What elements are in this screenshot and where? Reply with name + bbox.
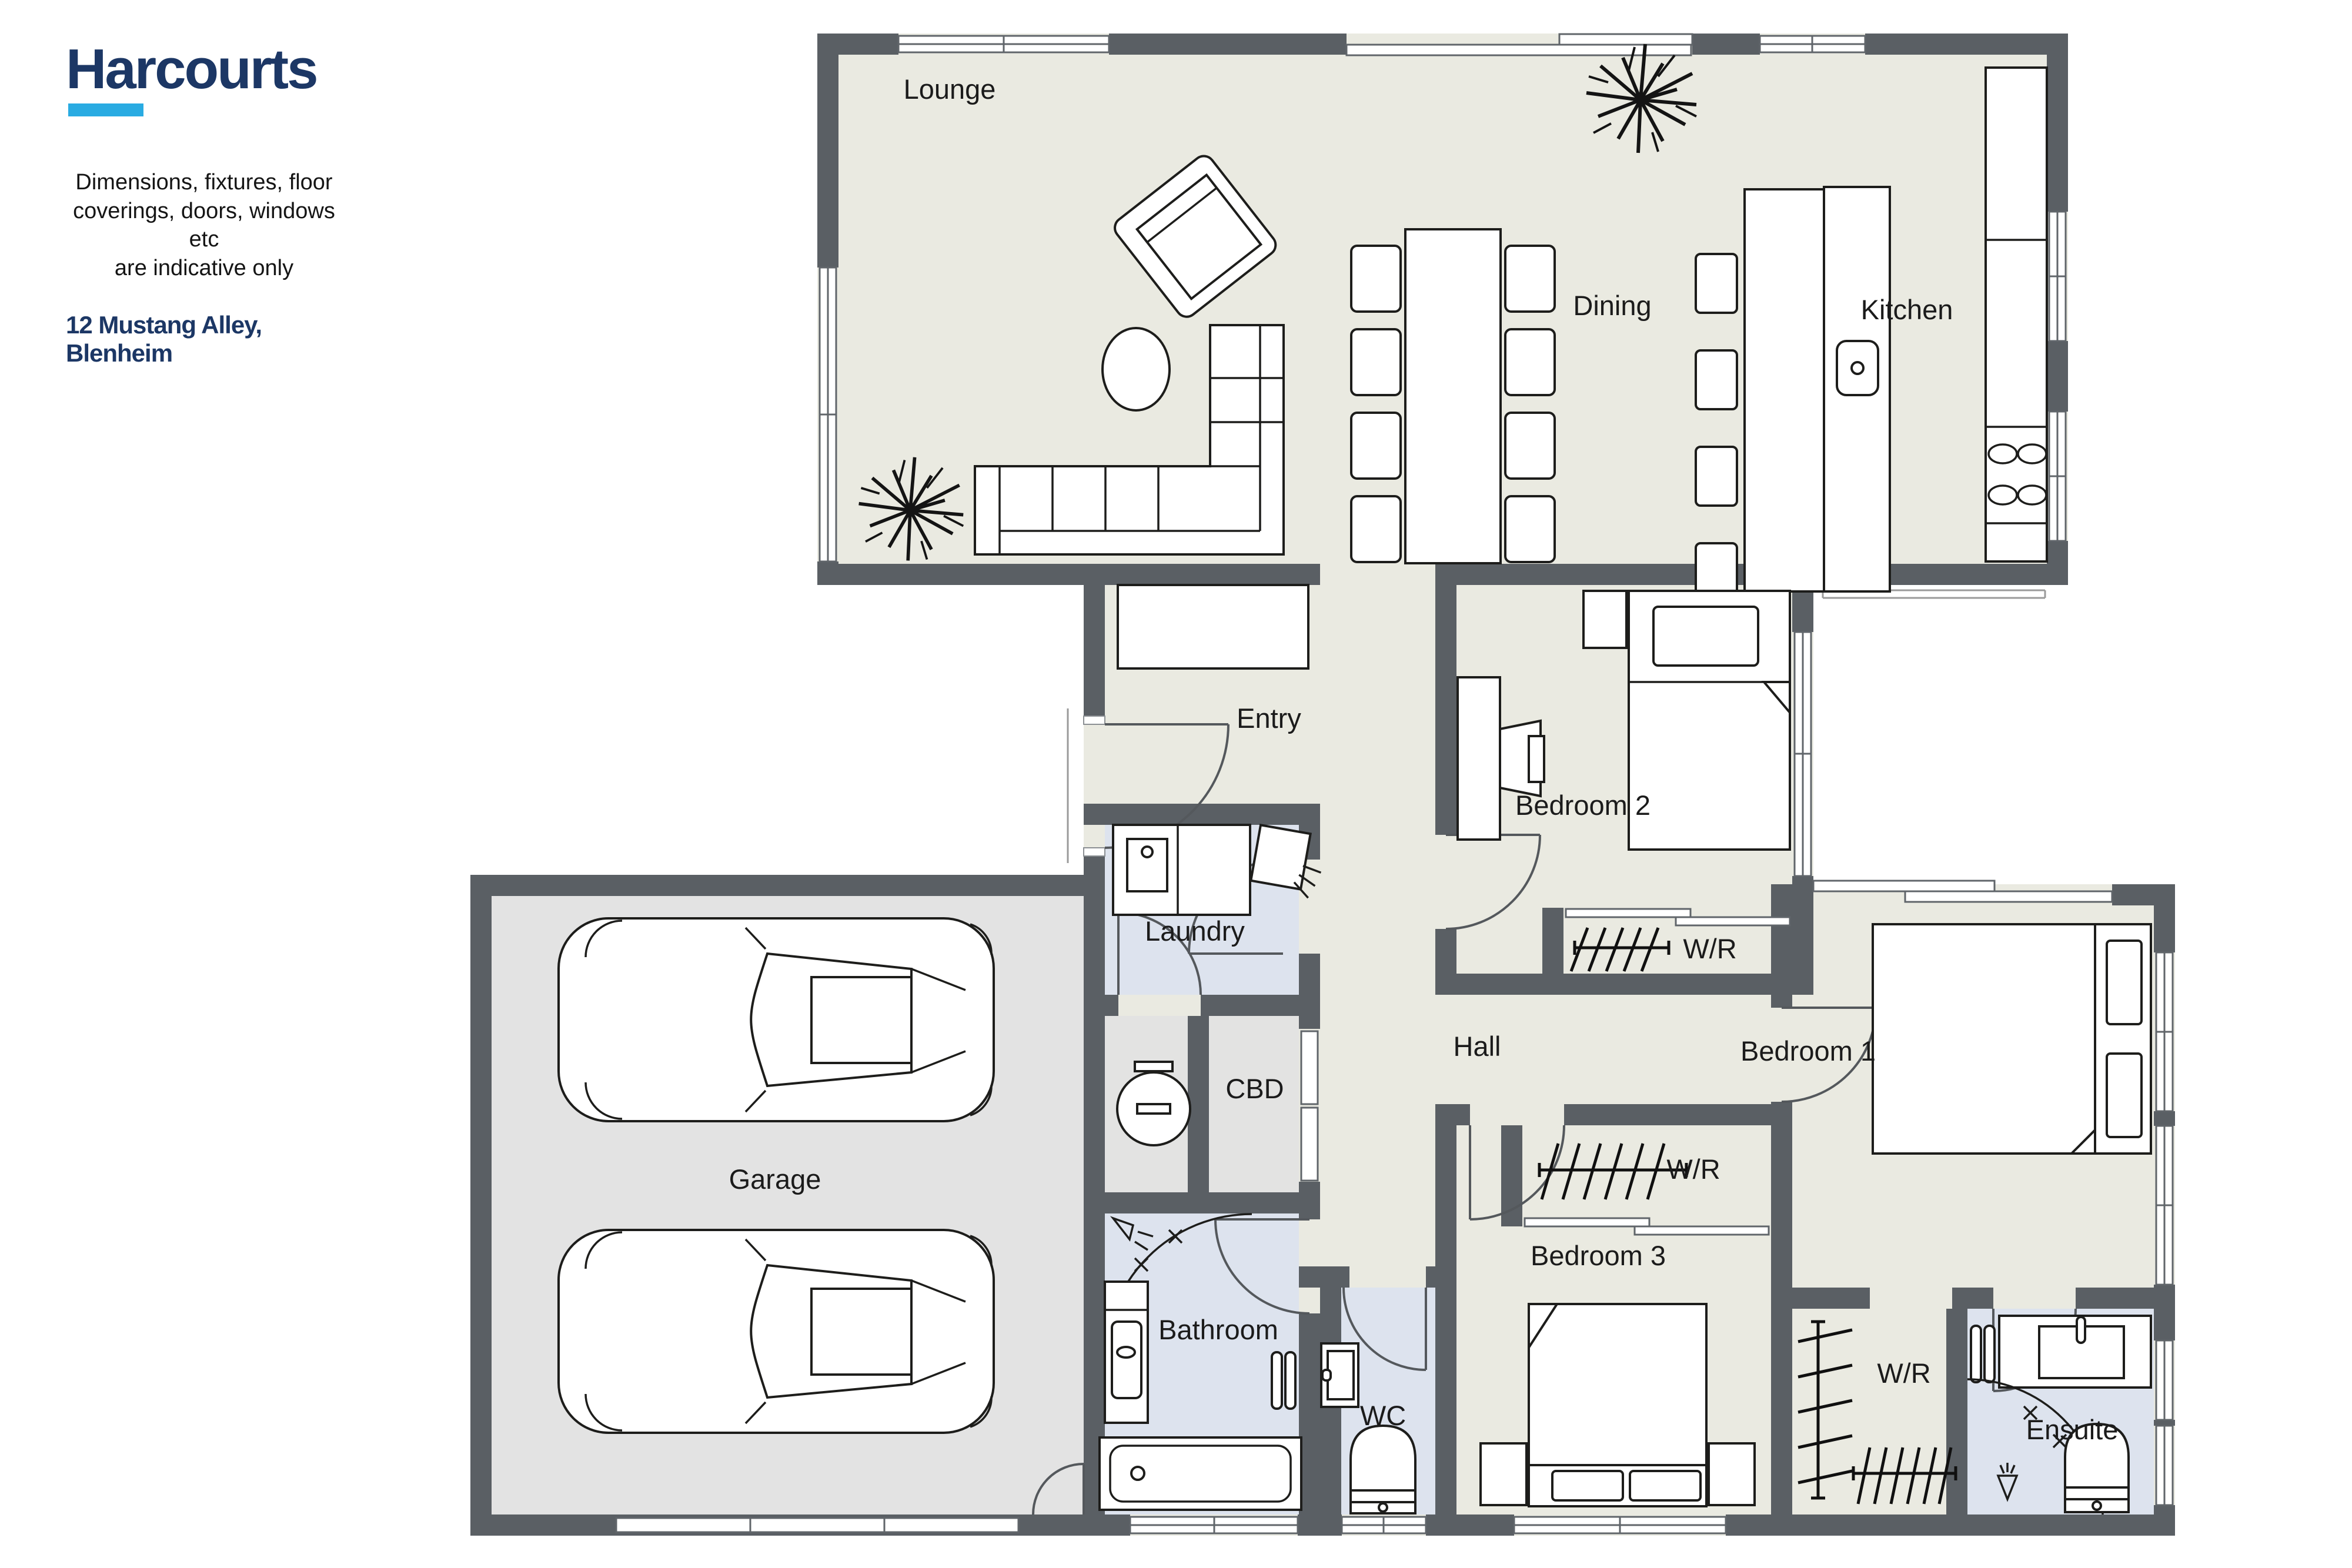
disclaimer-text: Dimensions, fixtures, floor coverings, d…	[66, 168, 342, 283]
floorplan-svg: Lounge Dining Kitchen Entry Laundry CBD …	[0, 0, 2352, 1568]
label-lounge: Lounge	[904, 73, 996, 105]
label-dining: Dining	[1573, 290, 1651, 321]
window-bedroom3-bottom	[1514, 1517, 1726, 1533]
harcourts-logo: Harcourts	[66, 41, 342, 98]
toilet-wc	[1351, 1426, 1415, 1513]
bathtub	[1100, 1437, 1301, 1510]
bathroom-vanity	[1105, 1282, 1148, 1423]
window-wc-bottom	[1342, 1517, 1426, 1533]
garage-door	[616, 1518, 1018, 1532]
bedroom2-nightstand	[1583, 591, 1626, 648]
property-address: 12 Mustang Alley, Blenheim	[66, 311, 342, 367]
window-bathroom-bottom	[1130, 1517, 1298, 1533]
front-door-jamb-bottom	[1084, 848, 1105, 856]
window-bedroom2-right	[1795, 632, 1811, 876]
bedroom3-bed	[1529, 1304, 1706, 1506]
label-bedroom2: Bedroom 2	[1515, 790, 1651, 821]
label-bedroom3: Bedroom 3	[1531, 1240, 1666, 1271]
dining-table-set	[1351, 229, 1555, 563]
kitchen-island	[1745, 187, 1890, 591]
window-lounge-left	[820, 268, 836, 561]
entry-closet	[1118, 585, 1308, 668]
floorplan-page: Harcourts Dimensions, fixtures, floor co…	[0, 0, 2352, 1568]
car	[559, 1230, 994, 1433]
label-entry: Entry	[1237, 703, 1301, 734]
label-wr-bedroom1: W/R	[1877, 1358, 1930, 1389]
window-lounge-top	[898, 36, 1109, 52]
label-kitchen: Kitchen	[1861, 294, 1953, 325]
label-cbd: CBD	[1225, 1073, 1284, 1104]
brand-block: Harcourts Dimensions, fixtures, floor co…	[66, 41, 342, 367]
label-garage: Garage	[729, 1164, 821, 1195]
wc-basin	[1321, 1343, 1358, 1407]
label-wc: WC	[1360, 1400, 1406, 1431]
side-table	[1102, 328, 1170, 410]
ensuite-vanity	[1999, 1316, 2151, 1388]
front-door-jamb-top	[1084, 716, 1105, 724]
window-kitchen-top	[1760, 36, 1865, 52]
label-wr-bedroom2: W/R	[1683, 933, 1736, 964]
car	[559, 918, 994, 1121]
logo-accent-bar	[68, 103, 143, 116]
label-hall: Hall	[1454, 1031, 1501, 1062]
label-wr-bedroom3: W/R	[1666, 1154, 1720, 1185]
bedroom3-nightstand-left	[1481, 1443, 1526, 1505]
label-bedroom1: Bedroom 1	[1740, 1035, 1876, 1066]
kitchen-bench	[1986, 68, 2047, 561]
bedroom3-nightstand-right	[1709, 1443, 1755, 1505]
laundry-bench	[1113, 825, 1250, 915]
bedroom1-bed	[1873, 924, 2151, 1154]
label-bathroom: Bathroom	[1158, 1314, 1278, 1345]
bedroom2-bed	[1629, 591, 1790, 850]
label-ensuite: Ensuite	[2026, 1414, 2119, 1445]
label-laundry: Laundry	[1145, 915, 1245, 947]
